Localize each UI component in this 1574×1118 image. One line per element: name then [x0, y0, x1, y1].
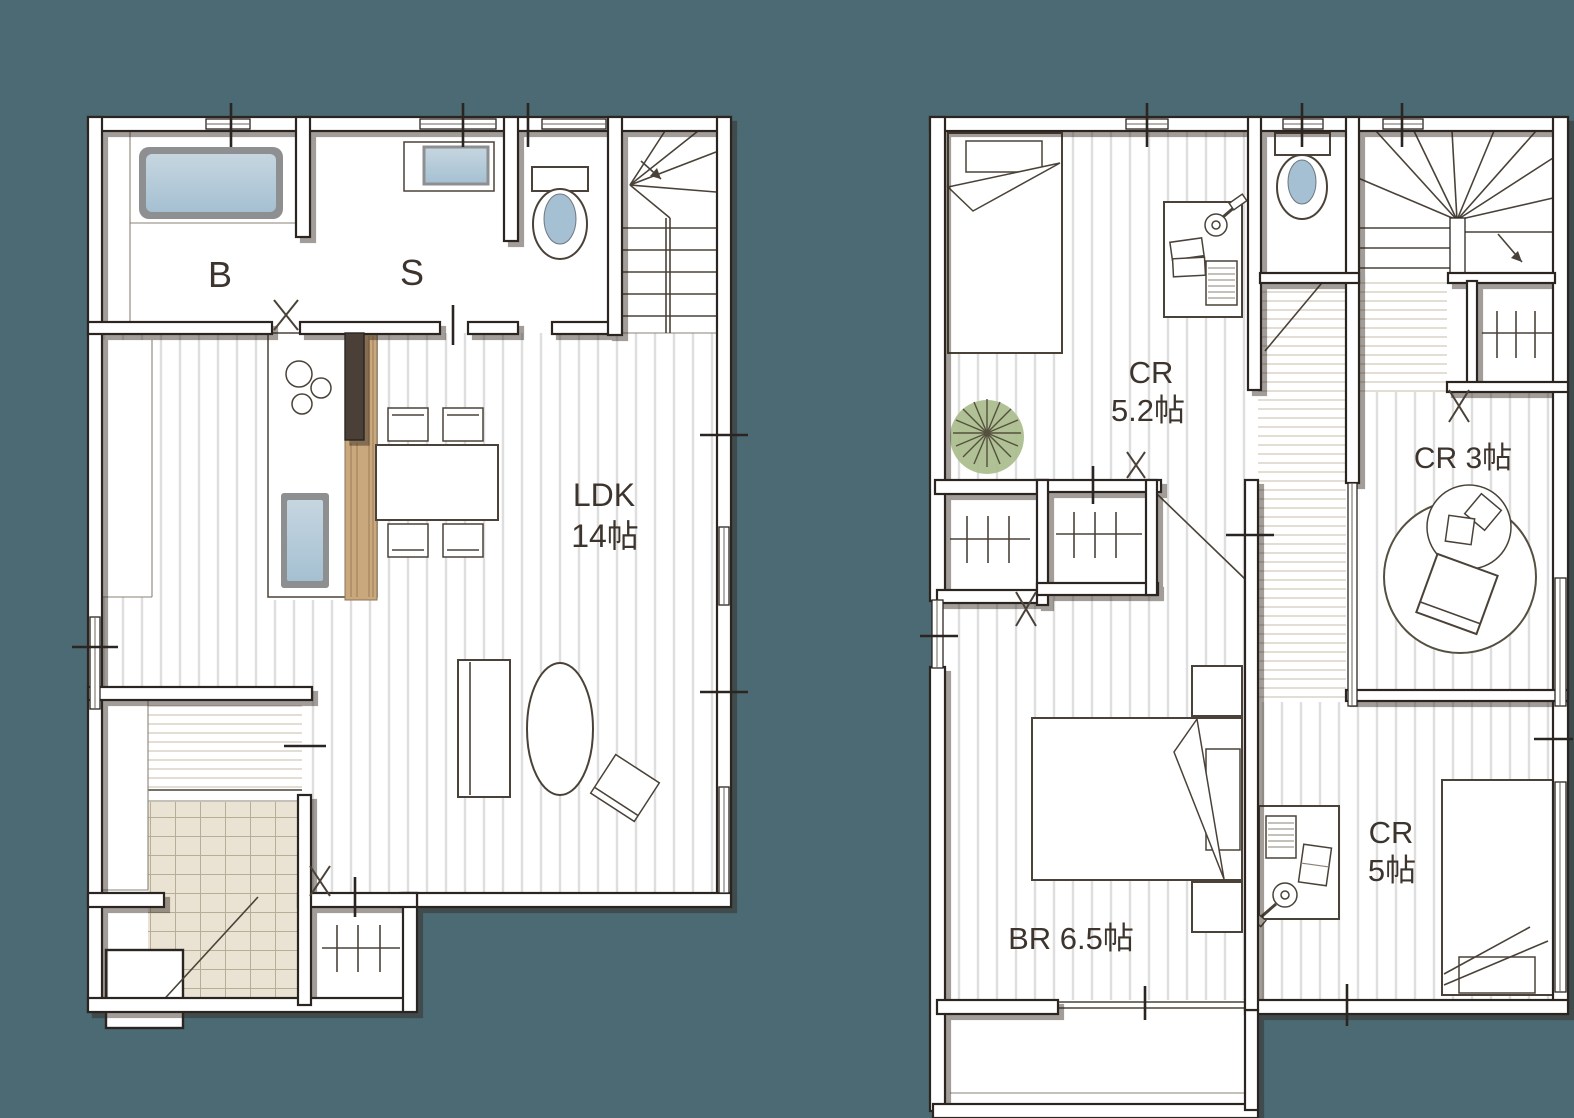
- wall-closet-tr-left: [1467, 281, 1477, 384]
- stair-newel: [1450, 218, 1465, 273]
- wall-left-lower: [930, 667, 945, 1111]
- wall-closet-top: [298, 893, 417, 907]
- room-size-cr52: 5.2帖: [1111, 393, 1185, 428]
- stove-burner: [286, 361, 312, 387]
- room-label-cr5: CR: [1369, 815, 1414, 850]
- dining-chair: [388, 408, 428, 441]
- wall-cr3-left-upper: [1346, 281, 1359, 483]
- wall-closet-mid-right: [1146, 480, 1157, 595]
- vanity-sink: [404, 142, 494, 191]
- sofa: [458, 660, 510, 797]
- wall-br-right: [1245, 480, 1258, 1010]
- floorplan-canvas: B S LDK 14帖: [0, 0, 1574, 1118]
- wall-cr3-cr5: [1346, 690, 1568, 701]
- stove-burner: [292, 394, 312, 414]
- wall-left: [88, 117, 102, 1012]
- wall-sanitary-wc: [504, 117, 518, 241]
- wall-br-bottom-stub: [937, 1000, 1058, 1014]
- nightstand: [1192, 882, 1242, 932]
- desk-cr52: [1164, 194, 1247, 317]
- wall-closet-mid-bottom: [1037, 583, 1158, 595]
- room-size-ldk: 14帖: [571, 518, 639, 554]
- wall-wc-right: [1346, 117, 1359, 283]
- floor-plan-2f: CR 5.2帖 CR 3帖 BR 6.5帖 CR 5帖: [920, 103, 1573, 1118]
- room-label-ldk: LDK: [573, 477, 635, 513]
- wall-genkan-right: [298, 795, 311, 1005]
- toilet-1f: [532, 167, 588, 259]
- single-bed-cr5: [1442, 780, 1553, 995]
- dining-table: [376, 445, 498, 520]
- 1f-entrance-step: [106, 950, 183, 1028]
- dining-chair: [443, 524, 483, 557]
- wall-band: [468, 322, 518, 334]
- wall-closet-left-bottom: [937, 590, 1038, 603]
- 1f-counter-cabinet: [102, 340, 152, 597]
- 1f-hall-planks: [148, 700, 302, 788]
- wall-stub-left: [88, 893, 164, 907]
- wall-stairs-bottom: [1448, 273, 1555, 283]
- wall-balcony-right: [1245, 1010, 1258, 1110]
- wall-wc-bottom: [1260, 273, 1359, 283]
- wall-bottom-right: [1245, 1000, 1568, 1014]
- wall-closet-tr-bottom: [1447, 382, 1568, 392]
- wall-bath-sanitary: [296, 117, 310, 237]
- 2f-hall-planks: [1258, 285, 1346, 702]
- wall-band: [88, 322, 272, 334]
- stove-burner: [311, 378, 331, 398]
- wall-hall-top: [88, 687, 312, 700]
- floor-plan-1f: B S LDK 14帖: [72, 103, 748, 1028]
- wall-left-upper: [930, 117, 945, 601]
- cushion: [1445, 515, 1474, 544]
- wall-closet-mid-top: [1037, 480, 1161, 492]
- wall-wc-left: [1248, 117, 1261, 390]
- floorplan-image: B S LDK 14帖: [0, 0, 1574, 1118]
- room-label-br: BR 6.5帖: [1008, 921, 1134, 956]
- 2f-closet-left-floor: [941, 493, 1037, 592]
- room-label-cr52: CR: [1129, 355, 1174, 390]
- wall-ldk-bottom: [400, 893, 731, 907]
- 2f-closet-mid-floor: [1048, 492, 1146, 585]
- dining-chair: [388, 524, 428, 557]
- wall-entry-right: [403, 893, 417, 1012]
- living-table: [527, 663, 593, 795]
- room-label-cr3: CR 3帖: [1414, 442, 1512, 475]
- dining-chair: [443, 408, 483, 441]
- wall-top: [88, 117, 731, 131]
- desk-cr5: [1250, 806, 1339, 927]
- wall-cr52-bottom: [935, 480, 1048, 494]
- wall-band: [300, 322, 440, 334]
- wall-wc-stairs: [608, 117, 622, 335]
- nightstand: [1192, 666, 1242, 716]
- room-label-bath: B: [208, 254, 232, 295]
- single-bed-cr52: [948, 133, 1062, 353]
- room-size-cr5: 5帖: [1368, 853, 1416, 888]
- wall-kitchen-stub: [345, 333, 364, 440]
- wall-bottom-left: [88, 998, 415, 1012]
- 2f-landing-planks: [1346, 281, 1447, 392]
- room-label-sanitary: S: [400, 252, 424, 293]
- keyboard: [1266, 816, 1296, 858]
- wall-balcony-bottom: [933, 1104, 1258, 1118]
